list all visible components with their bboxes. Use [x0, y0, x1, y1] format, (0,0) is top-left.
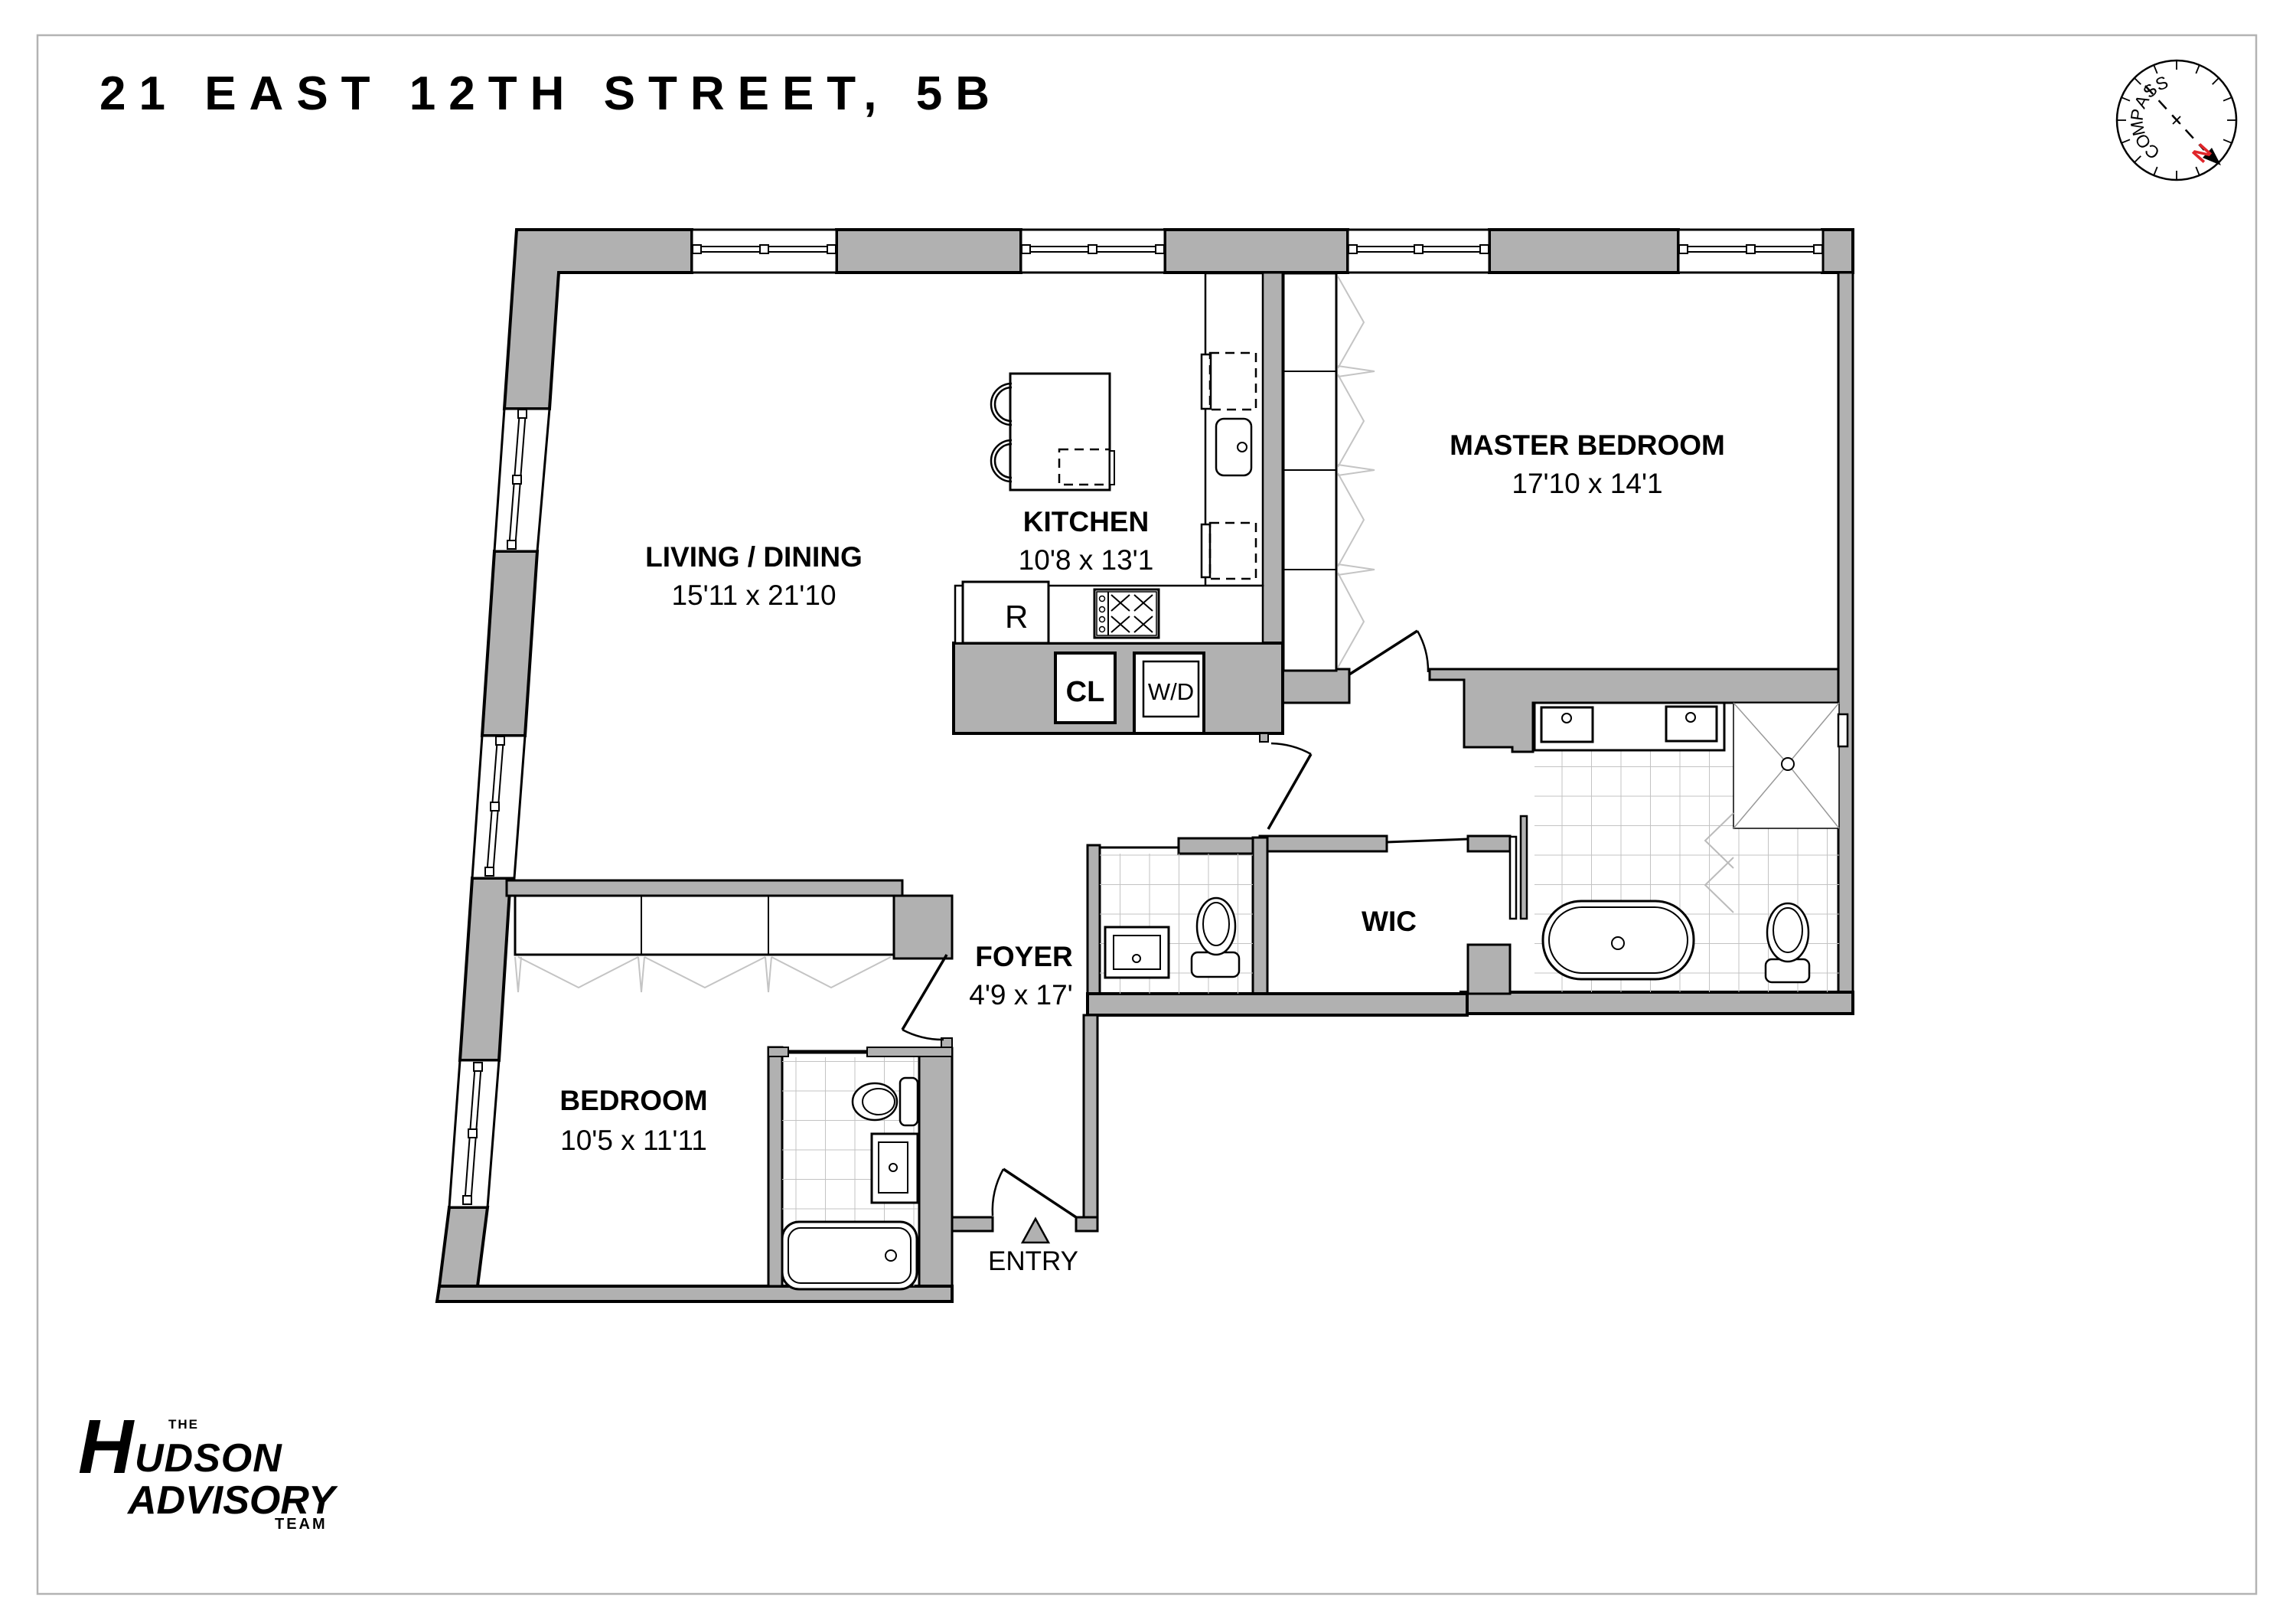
svg-text:TEAM: TEAM [275, 1516, 328, 1533]
svg-text:MASTER BEDROOM: MASTER BEDROOM [1450, 429, 1725, 461]
svg-text:21 EAST 12TH STREET, 5B: 21 EAST 12TH STREET, 5B [99, 67, 1003, 120]
svg-text:BEDROOM: BEDROOM [559, 1085, 707, 1116]
svg-text:10'8 x 13'1: 10'8 x 13'1 [1019, 544, 1154, 576]
svg-text:17'10 x 14'1: 17'10 x 14'1 [1512, 468, 1662, 499]
svg-text:ENTRY: ENTRY [988, 1246, 1078, 1276]
svg-text:WIC: WIC [1362, 906, 1417, 937]
svg-text:H: H [78, 1404, 135, 1490]
svg-text:W/D: W/D [1148, 678, 1194, 705]
svg-text:R: R [1005, 599, 1028, 635]
svg-text:10'5 x 11'11: 10'5 x 11'11 [560, 1125, 707, 1156]
svg-text:4'9 x 17': 4'9 x 17' [969, 979, 1073, 1011]
svg-text:KITCHEN: KITCHEN [1023, 506, 1149, 537]
svg-text:THE: THE [168, 1417, 199, 1432]
svg-text:FOYER: FOYER [975, 941, 1072, 972]
svg-text:LIVING / DINING: LIVING / DINING [645, 541, 863, 573]
svg-text:CL: CL [1066, 676, 1105, 708]
svg-text:UDSON: UDSON [135, 1436, 282, 1481]
svg-text:15'11 x 21'10: 15'11 x 21'10 [671, 580, 836, 611]
